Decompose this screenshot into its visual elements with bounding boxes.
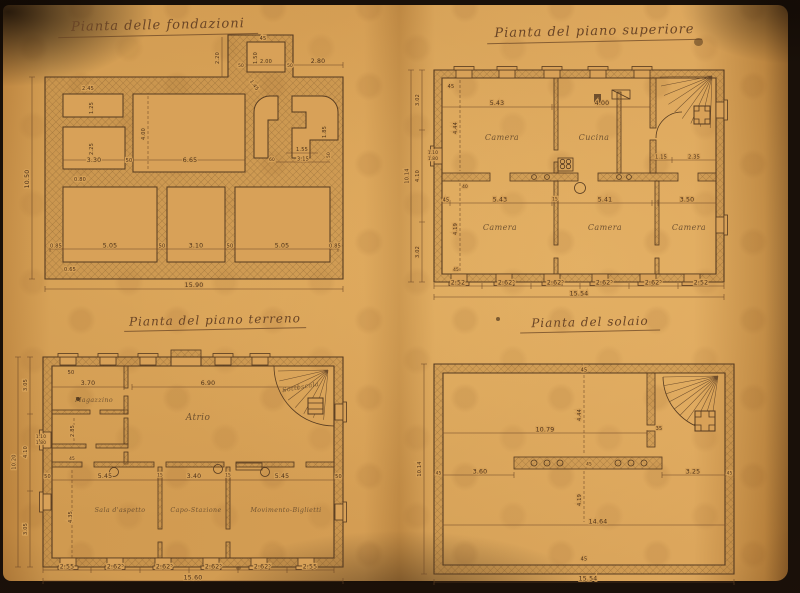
dim-label: 5.05	[275, 243, 290, 250]
dim-label: 50	[159, 244, 166, 250]
dim-label: 45	[448, 84, 455, 90]
dim-label: 45	[453, 267, 459, 273]
dim-label: 15	[552, 197, 558, 203]
dim-label: 50	[238, 63, 244, 69]
dim-label: 15.60	[184, 575, 203, 582]
dim-label: 6.90	[201, 380, 216, 387]
dim-label: 45	[436, 471, 442, 477]
upper-floor-walls	[434, 70, 724, 282]
dim-label: 45	[260, 36, 267, 42]
room-label: Movimento-Biglietti	[249, 507, 321, 514]
dim-label: 50	[126, 158, 133, 164]
dim-label: 2.00	[260, 59, 272, 65]
dim-label: 3.60	[473, 469, 488, 476]
room-label: Sala d'aspetto	[95, 507, 146, 514]
dim-label: 4.44	[453, 122, 459, 134]
dim-label: 10.14	[417, 461, 423, 476]
dim-label: 4.10	[23, 446, 29, 458]
dim-label: 3.40	[187, 473, 202, 480]
dim-label: 14.64	[589, 519, 608, 526]
dim-label: 3.05	[23, 523, 29, 535]
upper-floor-staircase	[656, 76, 712, 138]
attic-staircase	[663, 376, 718, 431]
dim-label: 2.52	[694, 280, 709, 287]
dim-label: 45	[443, 198, 450, 204]
room-label: Magazzino	[74, 397, 113, 404]
dim-label: 2.85	[70, 425, 76, 437]
dim-label: 3.30	[87, 157, 102, 164]
dim-label: 15.54	[570, 291, 589, 298]
dim-label: 5.43	[493, 197, 508, 204]
attic-plan-title: Pianta del solaio	[520, 314, 660, 334]
upper-floor-room-labels: Camera Cucina Camera Camera Camera	[483, 133, 706, 232]
stove-symbol	[558, 158, 573, 171]
dim-label: 35	[656, 426, 663, 432]
dim-label: 0.85	[50, 244, 62, 250]
dim-label: 1.80	[428, 156, 438, 162]
dim-label: 5.41	[598, 197, 613, 204]
dim-label: 5.45	[275, 473, 290, 480]
attic-plan-drawing: 45 10.79 4.44 35 45 3.60 45 3.25 45 4.19…	[402, 312, 790, 590]
dim-label: 2.55	[303, 564, 318, 571]
room-label: Capo-Stazione	[170, 507, 221, 514]
dim-label: 4.19	[577, 494, 583, 506]
dim-label: 1.50	[253, 52, 259, 64]
dim-label: 3.02	[415, 94, 421, 106]
dim-label: 1.85	[322, 126, 328, 138]
dim-label: 60	[269, 157, 275, 163]
dim-label: 4.19	[453, 223, 459, 235]
dim-label: 5.43	[490, 100, 505, 107]
dim-label: 2.20	[215, 52, 221, 64]
foundation-plan-drawing: 2.45 1.25 2.25 3.30 50 6.65 4.00 0.80 45…	[10, 12, 395, 305]
dim-label: 6.65	[183, 157, 198, 164]
room-label: Cucina	[579, 133, 610, 142]
dim-label: 15	[157, 473, 163, 479]
dim-label: 50	[335, 474, 342, 480]
dim-label: 3.50	[680, 197, 695, 204]
dim-label: 10.14	[405, 168, 411, 183]
dim-label: 2.80	[311, 58, 326, 65]
dim-label: 2.62⁵	[254, 564, 272, 571]
room-label: Camera	[485, 133, 519, 142]
dim-label: 50	[44, 474, 51, 480]
dim-label: 5.45	[98, 473, 113, 480]
dim-label: 2.45	[82, 86, 94, 92]
dim-label: 3.10	[189, 243, 204, 250]
dim-label: 15	[225, 473, 231, 479]
dim-label: 1.80	[36, 440, 46, 446]
room-label: Atrio	[185, 413, 211, 423]
room-label: Camera	[483, 223, 517, 232]
dim-label: 4.00	[595, 100, 610, 107]
dim-label: 50	[326, 152, 332, 158]
dim-label: 15.90	[185, 282, 204, 289]
dim-label: 2.62⁵	[645, 280, 663, 287]
dim-label: 50	[227, 244, 234, 250]
dim-label: 45	[581, 557, 588, 563]
dim-label: 0.85	[329, 244, 341, 250]
dim-label: 2.25	[89, 143, 95, 155]
dim-label: 45	[727, 471, 733, 477]
dim-label: 15.54	[579, 576, 598, 583]
dim-label: 0.80	[74, 177, 86, 183]
dim-label: 2.52	[451, 280, 466, 287]
dim-label: 10.50	[24, 170, 31, 189]
dim-label: 10.79	[536, 427, 555, 434]
dim-label: 2.62⁵	[205, 564, 223, 571]
dim-label: 3.02	[415, 246, 421, 258]
dim-label: 2.55	[60, 564, 75, 571]
dim-label: 1.10	[428, 150, 438, 156]
upper-floor-plan-drawing: Camera Cucina Camera Camera Camera 45 5.…	[402, 10, 790, 305]
dim-label: 5.05	[103, 243, 118, 250]
dim-label: 50	[68, 370, 75, 376]
ground-floor-dimension-labels: 50 3.70 6.90 2.85 45 50 5.45 15 3.40 15 …	[12, 370, 342, 582]
ground-floor-staircase	[274, 366, 334, 426]
dim-label: 1.15	[655, 155, 667, 161]
room-label: Camera	[672, 223, 706, 232]
room-label: Camera	[588, 223, 622, 232]
dim-label: 4.35	[68, 511, 74, 523]
dim-label: 3.70	[81, 380, 96, 387]
dim-label: 45	[69, 456, 75, 462]
dim-label: 50	[287, 63, 293, 69]
dim-label: 45	[581, 368, 588, 374]
dim-label: 3.05	[23, 379, 29, 391]
dim-label: 4.44	[577, 409, 583, 421]
dim-label: 1.10	[36, 434, 46, 440]
dim-label: 40	[462, 184, 468, 190]
ground-floor-plan-drawing: Magazzino Atrio Sottoscala Sala d'aspett…	[8, 312, 400, 590]
upper-floor-dimension-lines	[408, 70, 724, 300]
dim-label: 1.55	[296, 147, 308, 153]
dim-label: 4.10	[415, 170, 421, 182]
dim-label: 45	[586, 462, 592, 468]
dim-label: 3.15	[297, 157, 309, 163]
dim-label: 1.25	[89, 102, 95, 114]
dim-label: 2.62⁵	[547, 280, 565, 287]
dim-label: 2.62⁵	[498, 280, 516, 287]
dim-label: 4.00	[141, 128, 147, 140]
dim-label: 2.62⁵	[596, 280, 614, 287]
dim-label: 0.65	[64, 267, 76, 273]
dim-label: 2.35	[688, 155, 700, 161]
dim-label: 2.62⁵	[156, 564, 174, 571]
dim-label: 3.25	[686, 469, 701, 476]
entrance-opening	[171, 357, 201, 366]
dim-label: 2.62⁵	[107, 564, 125, 571]
scanned-drawing-page: Pianta delle fondazioni Pianta del piano…	[0, 0, 800, 593]
dim-label: 10.20	[12, 454, 18, 469]
